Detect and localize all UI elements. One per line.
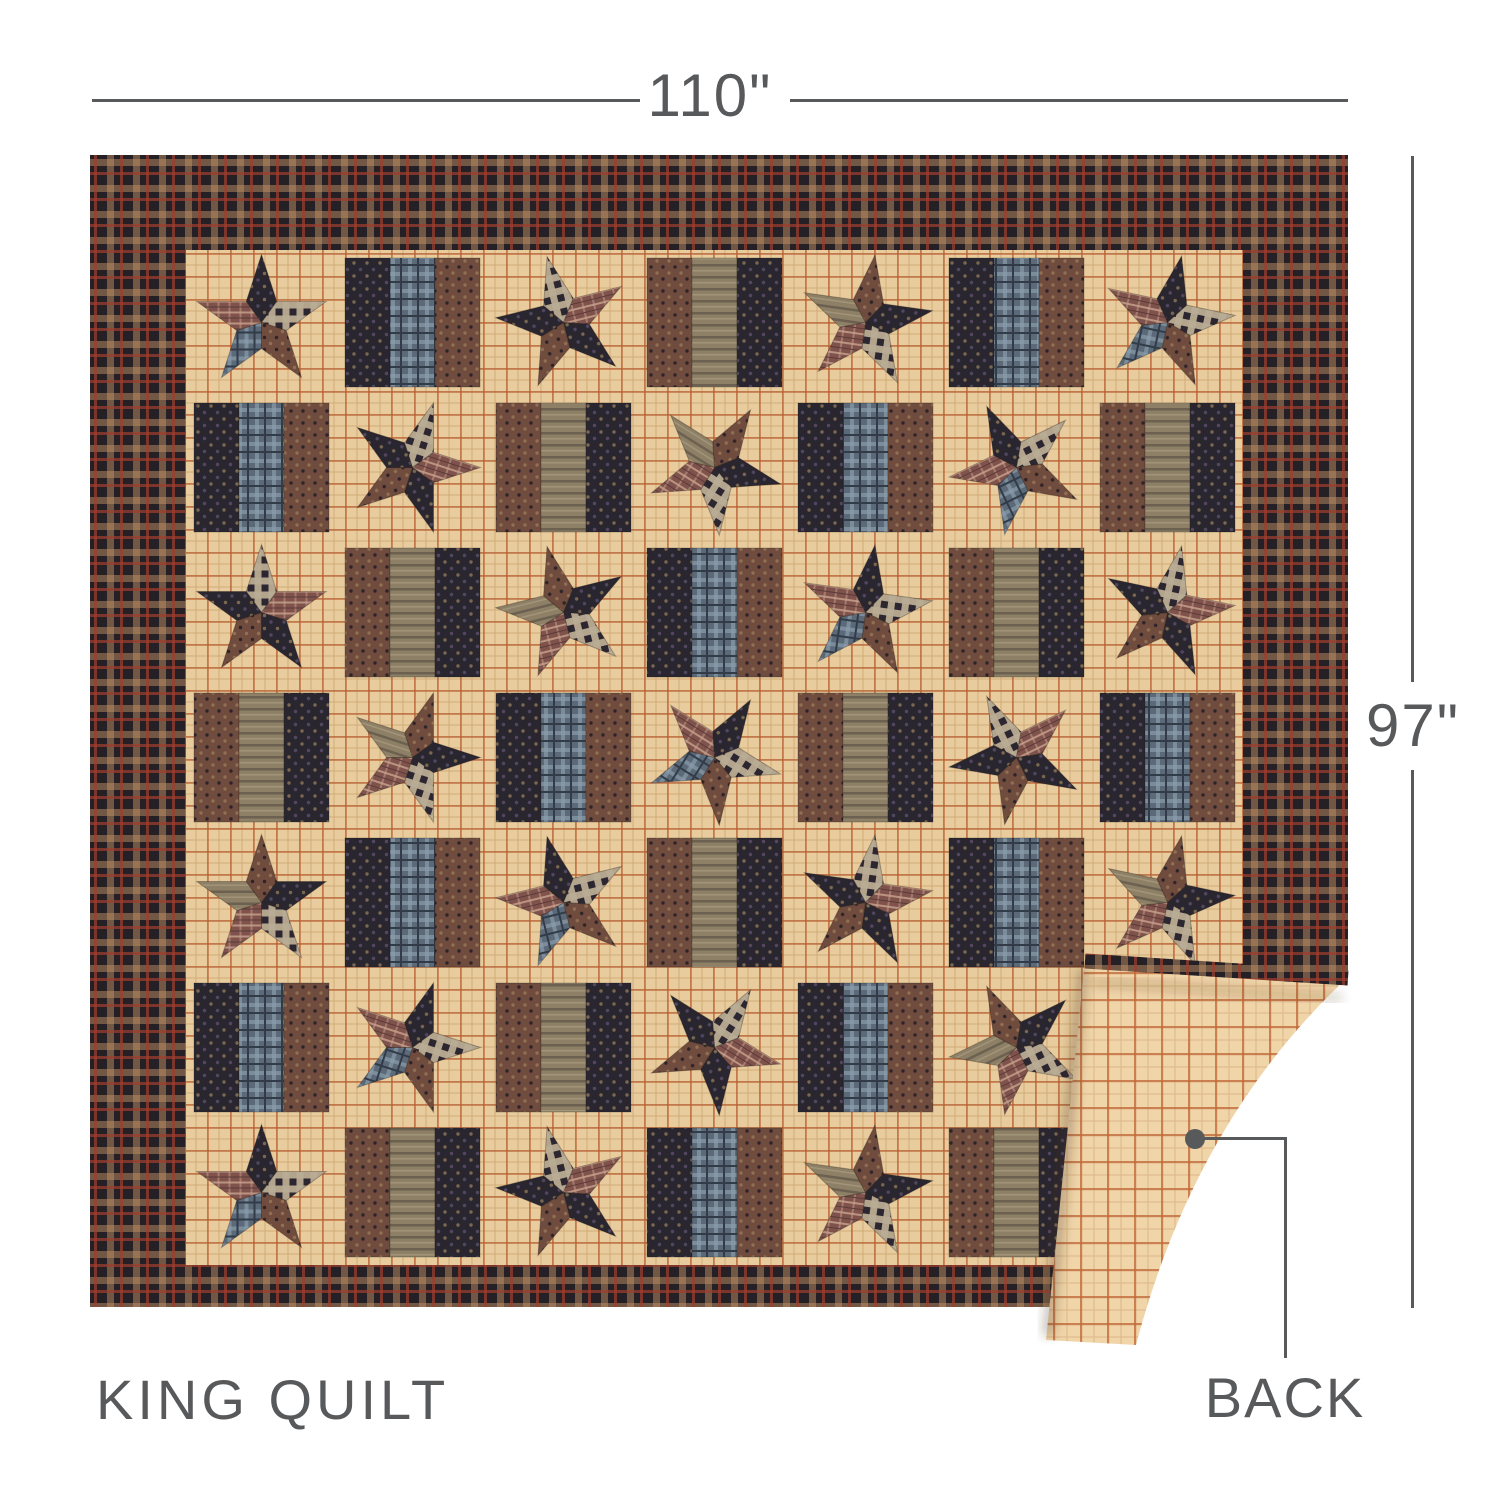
quilt-backing [1046, 960, 1348, 1345]
rail-block [1100, 693, 1235, 822]
back-callout-line-vertical [1284, 1137, 1287, 1358]
back-label: BACK [1196, 1370, 1374, 1426]
rail-block [194, 983, 329, 1112]
rail-block [345, 548, 480, 677]
quilt-backing-fold [1046, 960, 1348, 1345]
rail-block [798, 403, 933, 532]
rail-block [345, 1128, 480, 1257]
rail-block [647, 258, 782, 387]
rail-block [949, 548, 1084, 677]
quilt-image [0, 0, 1500, 1500]
height-dim-line-top [1411, 156, 1414, 682]
rail-block [496, 693, 631, 822]
rail-block [798, 983, 933, 1112]
product-label: KING QUILT [96, 1372, 449, 1428]
rail-block [194, 693, 329, 822]
width-dim-line-right [790, 99, 1348, 102]
rail-block [194, 403, 329, 532]
rail-block [647, 838, 782, 967]
product-dimension-diagram: 110" 97" BACK KING QUILT [0, 0, 1500, 1500]
rail-block [345, 258, 480, 387]
width-dim-label: 110" [628, 66, 792, 126]
width-dim-line-left [92, 99, 640, 102]
rail-block [798, 693, 933, 822]
rail-block [496, 403, 631, 532]
height-dim-label: 97" [1347, 696, 1479, 756]
rail-block [496, 983, 631, 1112]
rail-block [345, 838, 480, 967]
rail-block [949, 838, 1084, 967]
back-callout-line-horizontal [1202, 1137, 1286, 1140]
height-dim-line-bottom [1411, 770, 1414, 1308]
rail-block [1100, 403, 1235, 532]
rail-block [949, 258, 1084, 387]
rail-block [647, 548, 782, 677]
rail-block [647, 1128, 782, 1257]
